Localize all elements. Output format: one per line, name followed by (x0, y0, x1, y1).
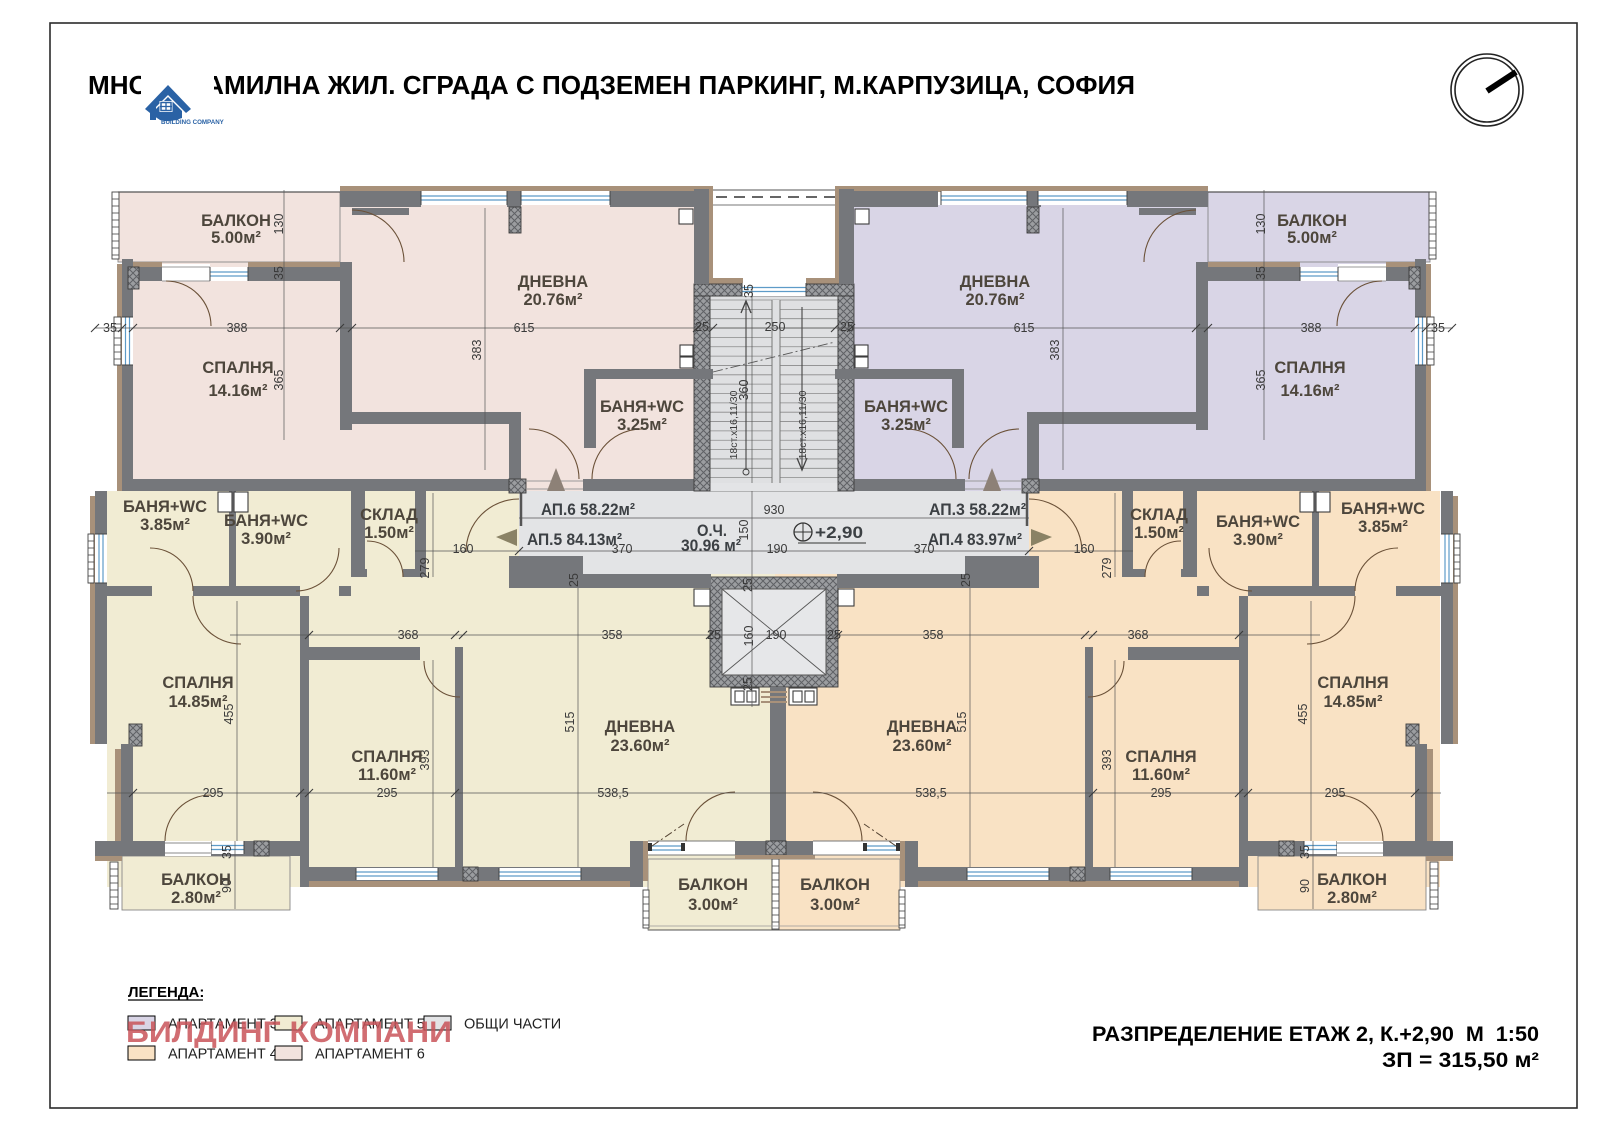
svg-text:160: 160 (453, 542, 474, 556)
svg-text:3.00м²: 3.00м² (810, 896, 860, 914)
svg-text:АП.6 58.22м²: АП.6 58.22м² (541, 500, 635, 519)
svg-text:515: 515 (563, 712, 577, 733)
svg-text:295: 295 (1151, 786, 1172, 800)
svg-text:25: 25 (840, 320, 854, 334)
svg-text:РАЗПРЕДЕЛЕНИЕ ЕТАЖ 2, К.+2,90: РАЗПРЕДЕЛЕНИЕ ЕТАЖ 2, К.+2,90 М 1:50 (1092, 1023, 1539, 1046)
svg-text:35: 35 (1254, 266, 1268, 280)
svg-text:35: 35 (220, 845, 234, 859)
svg-text:388: 388 (227, 321, 248, 335)
svg-text:160: 160 (1074, 542, 1095, 556)
svg-text:3.85м²: 3.85м² (140, 516, 190, 534)
svg-text:35: 35 (742, 284, 756, 298)
svg-text:БАНЯ+WC: БАНЯ+WC (224, 512, 308, 530)
svg-text:СПАЛНЯ: СПАЛНЯ (1274, 359, 1345, 377)
svg-text:14.16м²: 14.16м² (1281, 382, 1340, 400)
svg-text:БАЛКОН: БАЛКОН (161, 871, 231, 889)
svg-text:35: 35 (1298, 845, 1312, 859)
svg-text:20.76м²: 20.76м² (524, 291, 583, 309)
svg-text:СПАЛНЯ: СПАЛНЯ (1317, 674, 1388, 692)
svg-text:23.60м²: 23.60м² (893, 737, 952, 755)
svg-text:1.50м²: 1.50м² (364, 524, 414, 542)
svg-text:393: 393 (1100, 750, 1114, 771)
svg-text:1.50м²: 1.50м² (1134, 524, 1184, 542)
svg-text:ДНЕВНА: ДНЕВНА (605, 718, 676, 736)
svg-text:МНОГОФАМИЛНА ЖИЛ. СГРАДА С ПОД: МНОГОФАМИЛНА ЖИЛ. СГРАДА С ПОДЗЕМЕН ПАРК… (88, 70, 1135, 100)
svg-text:3.00м²: 3.00м² (688, 896, 738, 914)
svg-text:25: 25 (707, 628, 721, 642)
svg-text:ДНЕВНА: ДНЕВНА (518, 273, 589, 291)
svg-text:360: 360 (737, 380, 751, 401)
svg-text:615: 615 (1014, 321, 1035, 335)
svg-text:538,5: 538,5 (915, 786, 946, 800)
svg-text:БАНЯ+WC: БАНЯ+WC (864, 398, 948, 416)
svg-text:35: 35 (103, 321, 117, 335)
svg-text:ДНЕВНА: ДНЕВНА (960, 273, 1031, 291)
svg-text:11.60м²: 11.60м² (358, 766, 417, 784)
svg-text:ЛЕГЕНДА:: ЛЕГЕНДА: (128, 984, 204, 1001)
svg-text:250: 250 (765, 320, 786, 334)
svg-text:БАЛКОН: БАЛКОН (1277, 212, 1347, 230)
svg-text:ЗП = 315,50 м²: ЗП = 315,50 м² (1382, 1049, 1539, 1072)
svg-text:БАЛКОН: БАЛКОН (1317, 871, 1387, 889)
svg-text:130: 130 (272, 214, 286, 235)
svg-text:25: 25 (741, 677, 755, 691)
svg-text:25: 25 (827, 628, 841, 642)
svg-text:295: 295 (1325, 786, 1346, 800)
svg-text:295: 295 (377, 786, 398, 800)
svg-text:БИЛДИНГ КОМПАНИ: БИЛДИНГ КОМПАНИ (126, 1016, 452, 1049)
svg-text:368: 368 (398, 628, 419, 642)
svg-text:СПАЛНЯ: СПАЛНЯ (162, 674, 233, 692)
svg-text:14.85м²: 14.85м² (169, 693, 228, 711)
svg-text:295: 295 (203, 786, 224, 800)
svg-text:3.25м²: 3.25м² (881, 416, 931, 434)
svg-text:БАНЯ+WC: БАНЯ+WC (1341, 500, 1425, 518)
svg-text:365: 365 (1254, 370, 1268, 391)
svg-text:30.96 м²: 30.96 м² (681, 536, 741, 555)
svg-text:35: 35 (1431, 321, 1445, 335)
svg-text:365: 365 (272, 370, 286, 391)
svg-text:130: 130 (1254, 214, 1268, 235)
svg-text:БАЛКОН: БАЛКОН (678, 876, 748, 894)
svg-text:383: 383 (470, 340, 484, 361)
svg-text:АП.5 84.13м²: АП.5 84.13м² (527, 530, 622, 549)
svg-text:14.16м²: 14.16м² (209, 382, 268, 400)
svg-text:20.76м²: 20.76м² (966, 291, 1025, 309)
svg-text:930: 930 (764, 503, 785, 517)
svg-text:279: 279 (1100, 558, 1114, 579)
svg-text:25: 25 (695, 320, 709, 334)
svg-text:279: 279 (418, 558, 432, 579)
svg-text:BUILDING COMPANY: BUILDING COMPANY (161, 119, 225, 126)
svg-text:368: 368 (1128, 628, 1149, 642)
svg-text:25: 25 (741, 578, 755, 592)
svg-text:383: 383 (1048, 340, 1062, 361)
svg-text:+2,90: +2,90 (815, 523, 863, 542)
svg-text:538,5: 538,5 (597, 786, 628, 800)
svg-text:3.25м²: 3.25м² (617, 416, 667, 434)
svg-text:388: 388 (1301, 321, 1322, 335)
svg-text:615: 615 (514, 321, 535, 335)
svg-text:190: 190 (766, 628, 787, 642)
svg-text:3.90м²: 3.90м² (241, 530, 291, 548)
svg-text:ДНЕВНА: ДНЕВНА (887, 718, 958, 736)
svg-text:СПАЛНЯ: СПАЛНЯ (1125, 748, 1196, 766)
svg-text:190: 190 (767, 542, 788, 556)
svg-text:2.80м²: 2.80м² (1327, 889, 1377, 907)
svg-text:СПАЛНЯ: СПАЛНЯ (202, 359, 273, 377)
svg-text:АП.4 83.97м²: АП.4 83.97м² (928, 530, 1022, 549)
svg-text:5.00м²: 5.00м² (211, 229, 261, 247)
svg-text:БАНЯ+WC: БАНЯ+WC (1216, 513, 1300, 531)
svg-text:90: 90 (1298, 879, 1312, 893)
svg-text:СКЛАД: СКЛАД (1130, 506, 1188, 524)
svg-text:25: 25 (959, 573, 973, 587)
svg-text:35: 35 (272, 266, 286, 280)
svg-text:25: 25 (567, 573, 581, 587)
svg-text:СПАЛНЯ: СПАЛНЯ (351, 748, 422, 766)
svg-text:14.85м²: 14.85м² (1324, 693, 1383, 711)
svg-text:ОБЩИ ЧАСТИ: ОБЩИ ЧАСТИ (464, 1017, 561, 1033)
svg-text:160: 160 (742, 626, 756, 647)
svg-text:358: 358 (923, 628, 944, 642)
svg-text:БАНЯ+WC: БАНЯ+WC (123, 498, 207, 516)
svg-text:3.90м²: 3.90м² (1233, 531, 1283, 549)
svg-text:3.85м²: 3.85м² (1358, 518, 1408, 536)
svg-text:АП.3 58.22м²: АП.3 58.22м² (929, 500, 1026, 519)
svg-text:БАЛКОН: БАЛКОН (201, 212, 271, 230)
svg-text:23.60м²: 23.60м² (611, 737, 670, 755)
svg-text:БАНЯ+WC: БАНЯ+WC (600, 398, 684, 416)
svg-text:БАЛКОН: БАЛКОН (800, 876, 870, 894)
svg-text:455: 455 (1296, 704, 1310, 725)
svg-text:2.80м²: 2.80м² (171, 889, 221, 907)
svg-text:5.00м²: 5.00м² (1287, 229, 1337, 247)
svg-text:СКЛАД: СКЛАД (360, 506, 418, 524)
svg-text:18ст.x16,11/30: 18ст.x16,11/30 (797, 390, 809, 459)
svg-text:11.60м²: 11.60м² (1132, 766, 1191, 784)
svg-text:358: 358 (602, 628, 623, 642)
